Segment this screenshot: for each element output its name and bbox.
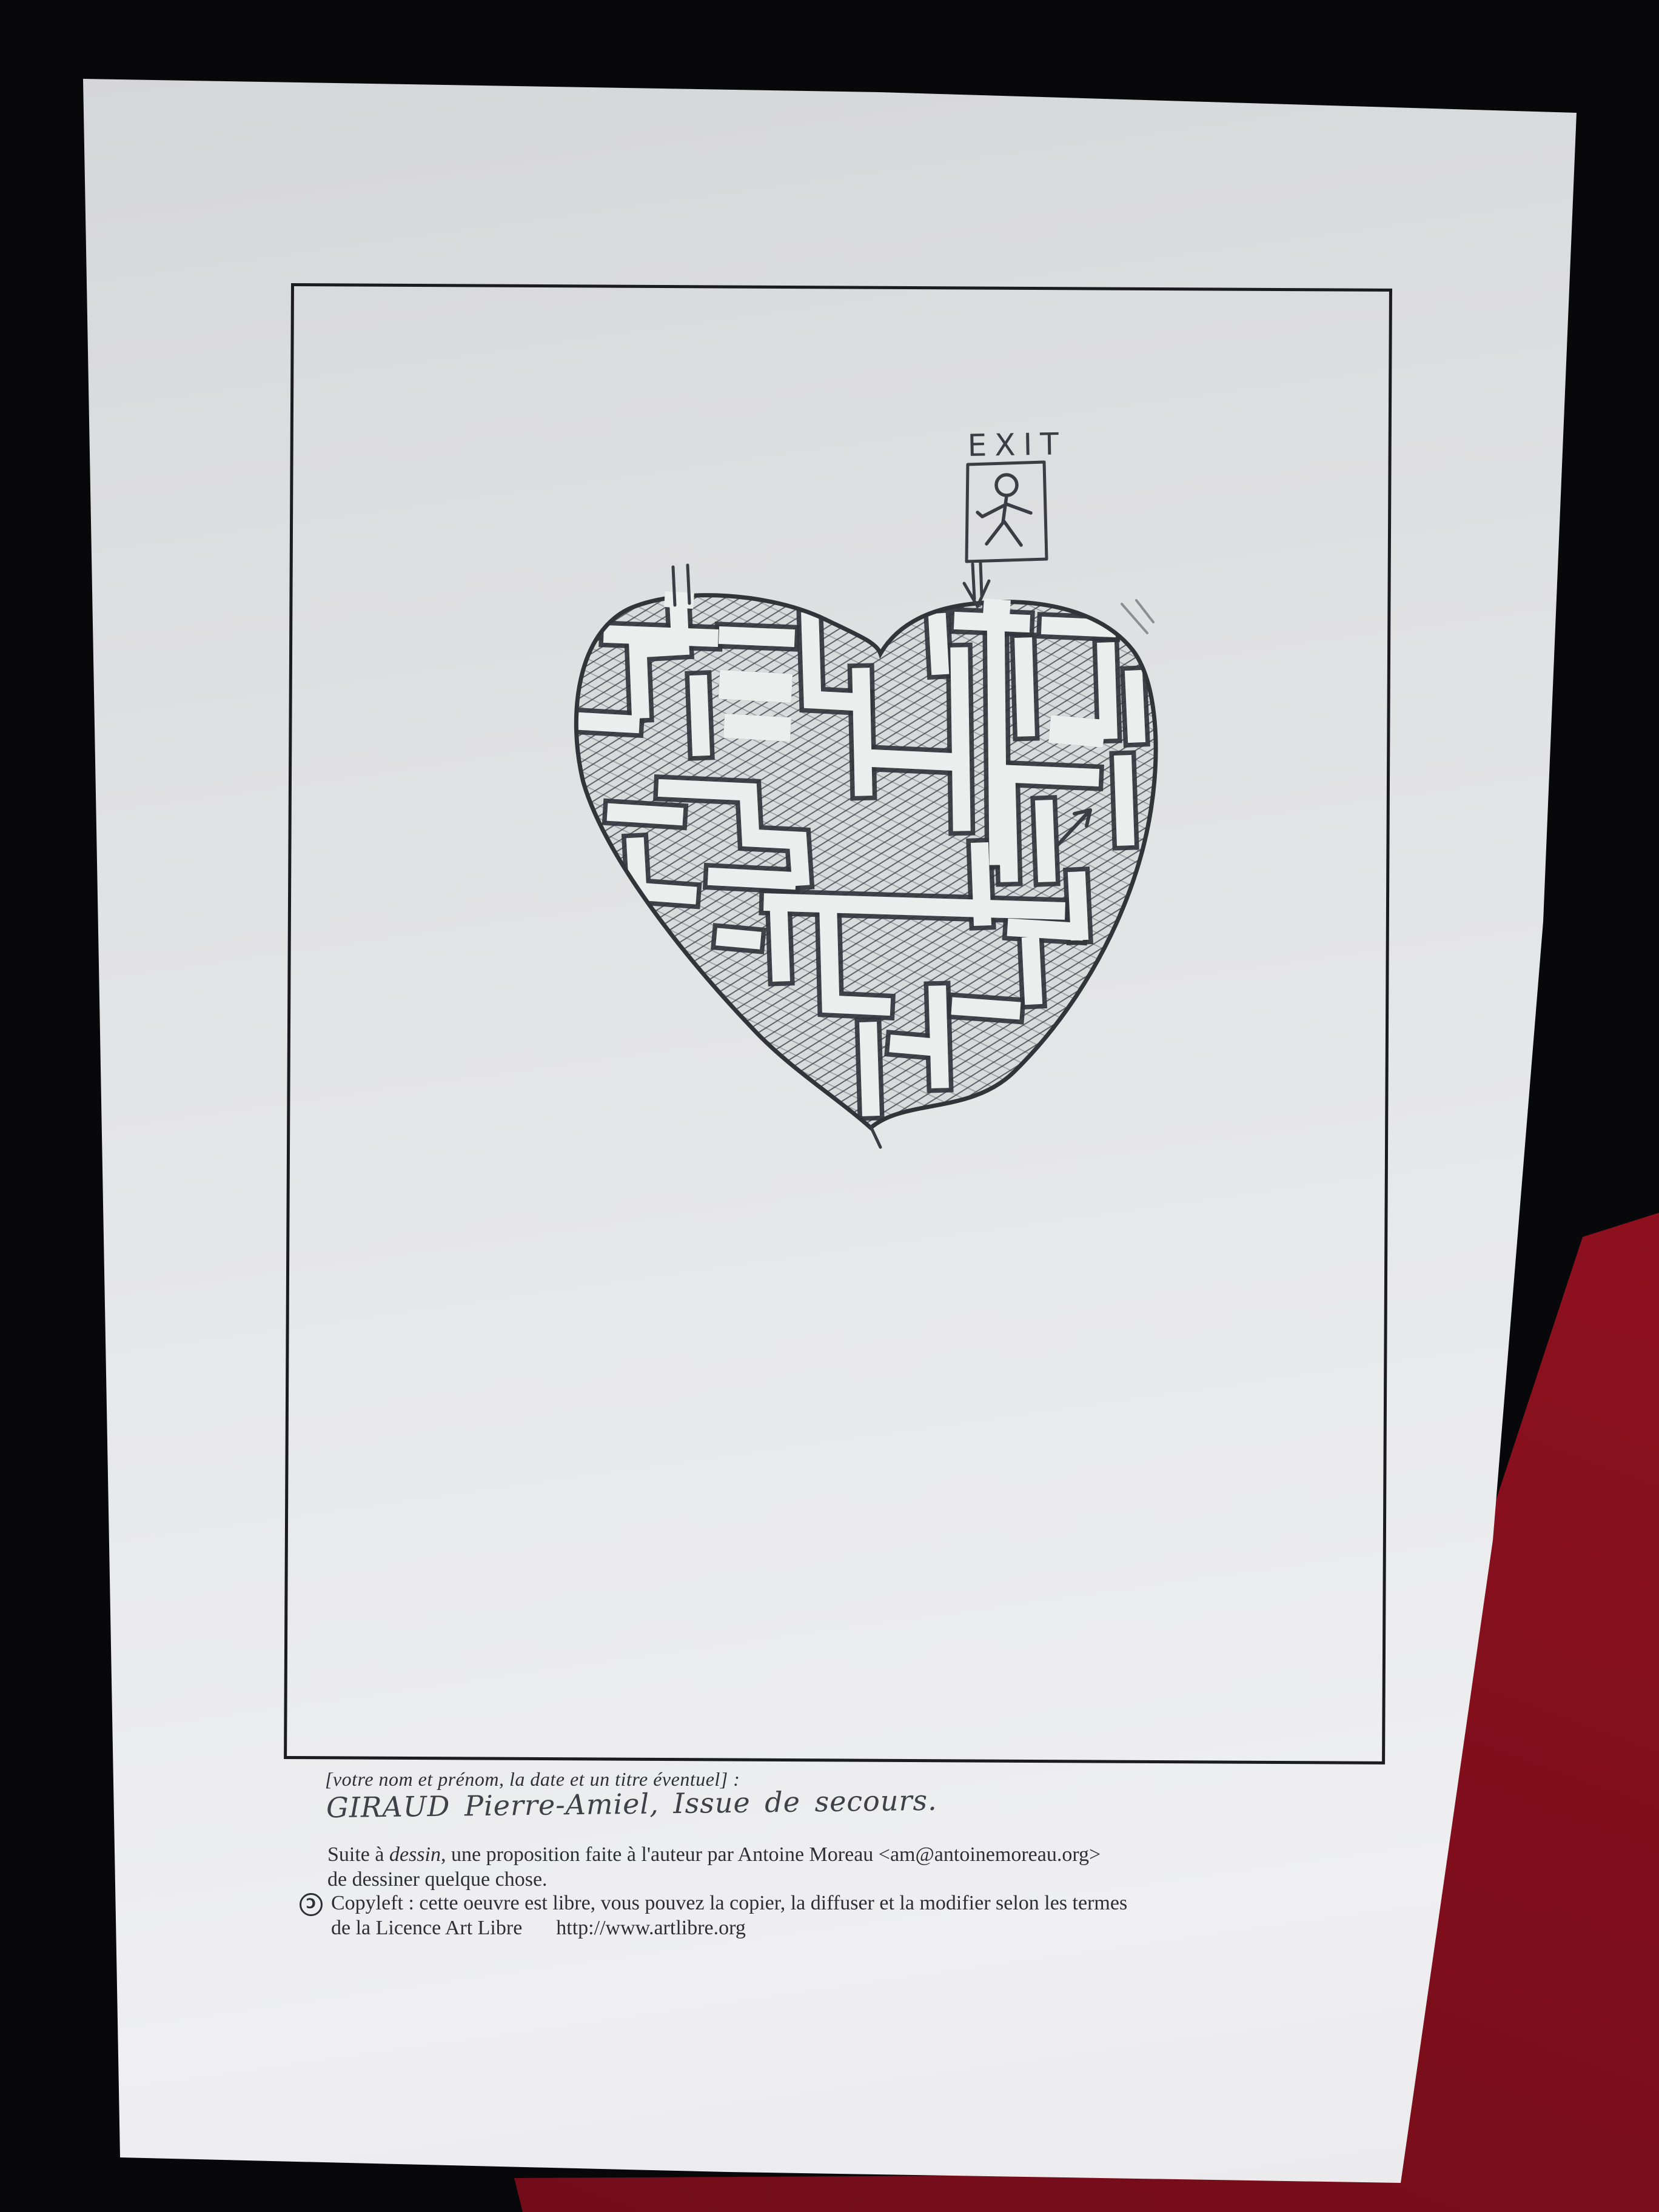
exit-label: EXIT [967, 426, 1067, 463]
credit-prefix: Suite à [327, 1843, 389, 1866]
copyleft-line-1: Copyleft : cette oeuvre est libre, vous … [331, 1891, 1127, 1915]
credit-paragraph: Suite à dessin, une proposition faite à … [327, 1842, 1310, 1892]
credit-line-1: Suite à dessin, une proposition faite à … [327, 1842, 1310, 1867]
credit-rest: , une proposition faite à l'auteur par A… [441, 1843, 1101, 1866]
license-name: de la Licence Art Libre [331, 1917, 522, 1939]
credit-italic-word: dessin [389, 1843, 441, 1866]
heart-maze-body [576, 595, 1156, 1147]
photograph-of-drawing: EXIT [v [0, 0, 1659, 2212]
heart-tip-tail [871, 1127, 880, 1147]
credit-line-2: de dessiner quelque chose. [327, 1867, 1310, 1892]
maze-entrance-right-gap [984, 606, 1010, 608]
copyleft-icon: Ɔ [300, 1893, 323, 1916]
exit-man-icon [977, 475, 1031, 545]
copyleft-line-2: de la Licence Art Librehttp://www.artlib… [331, 1915, 1127, 1940]
copyleft-text: Copyleft : cette oeuvre est libre, vous … [331, 1891, 1127, 1940]
exit-sign: EXIT [967, 426, 1067, 561]
stray-pencil-strokes [1122, 600, 1153, 633]
copyleft-paragraph: Ɔ Copyleft : cette oeuvre est libre, vou… [300, 1891, 1127, 1940]
license-url: http://www.artlibre.org [556, 1917, 746, 1939]
